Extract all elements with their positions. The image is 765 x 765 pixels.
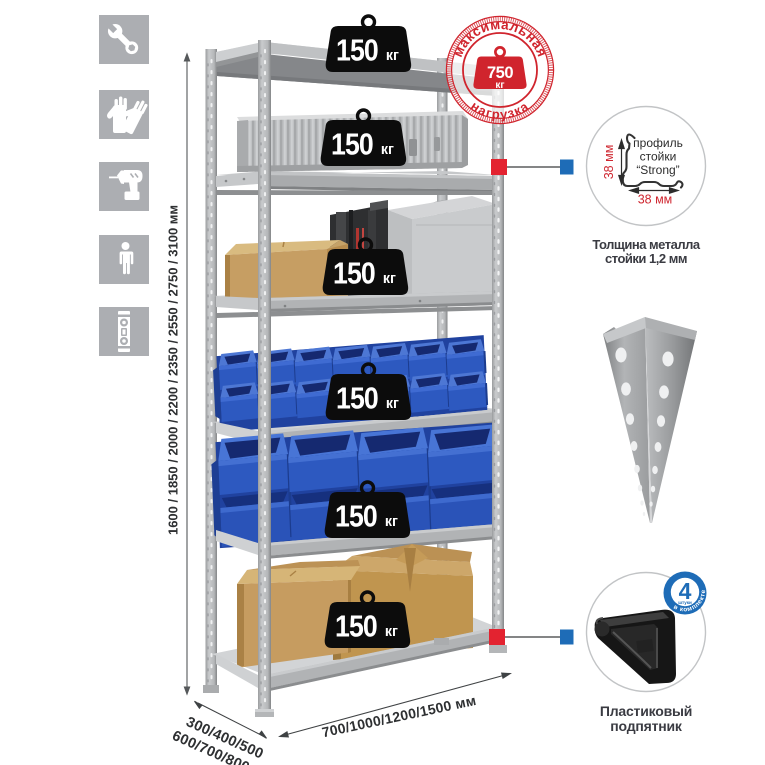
- svg-text:подпятник: подпятник: [610, 718, 683, 734]
- svg-text:кг: кг: [495, 80, 504, 91]
- svg-text:штуки: штуки: [678, 600, 692, 605]
- svg-text:стойки: стойки: [640, 150, 677, 164]
- svg-text:38 мм: 38 мм: [638, 193, 673, 207]
- svg-text:профиль: профиль: [633, 136, 683, 150]
- svg-text:38 мм: 38 мм: [602, 145, 616, 180]
- svg-text:стойки 1,2 мм: стойки 1,2 мм: [605, 251, 687, 266]
- svg-text:1600 / 1850 / 2000 / 2200 / 23: 1600 / 1850 / 2000 / 2200 / 2350 / 2550 …: [166, 205, 181, 535]
- svg-text:Пластиковый: Пластиковый: [600, 703, 692, 719]
- svg-text:700/1000/1200/1500 мм: 700/1000/1200/1500 мм: [320, 692, 477, 740]
- svg-text:Толщина металла: Толщина металла: [592, 237, 700, 252]
- svg-text:“Strong”: “Strong”: [636, 163, 679, 177]
